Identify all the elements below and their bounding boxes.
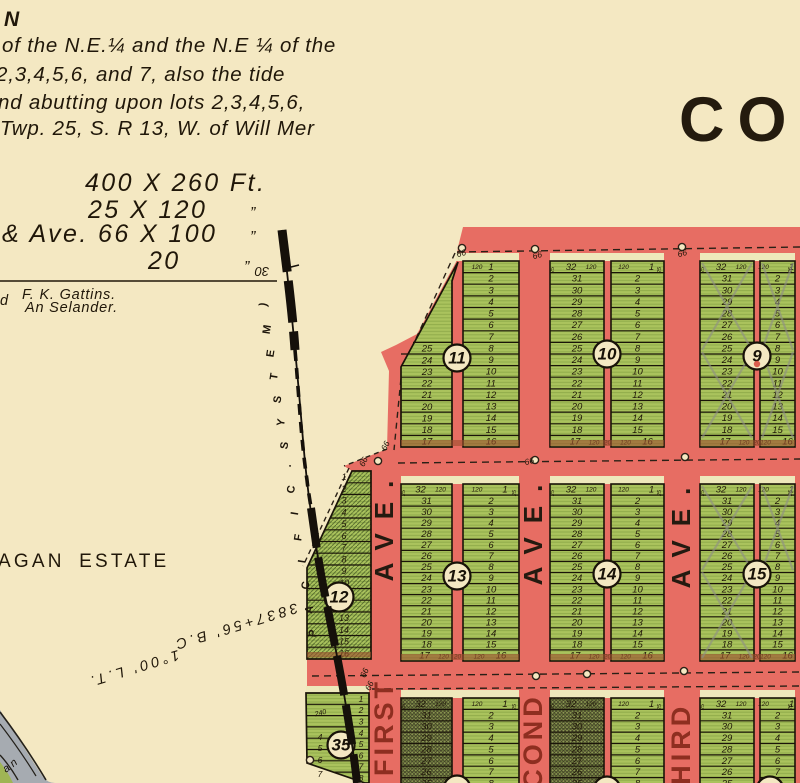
svg-text:31: 31: [572, 710, 583, 721]
svg-text:120: 120: [586, 701, 597, 708]
svg-text:11: 11: [448, 349, 466, 368]
svg-text:3: 3: [635, 285, 641, 296]
svg-text:25: 25: [421, 344, 433, 355]
svg-text:11: 11: [773, 595, 783, 606]
svg-text:9: 9: [775, 573, 781, 584]
svg-text:30: 30: [572, 285, 583, 296]
svg-text:5: 5: [635, 529, 641, 540]
svg-text:7: 7: [488, 551, 494, 562]
svg-text:& Ave. 66 X 100: & Ave. 66 X 100: [2, 220, 217, 248]
svg-text:23: 23: [571, 584, 583, 595]
svg-text:25: 25: [550, 266, 556, 274]
svg-text:30: 30: [722, 722, 733, 733]
svg-text:18: 18: [572, 640, 583, 651]
svg-text:1: 1: [502, 485, 507, 496]
svg-text:1: 1: [359, 694, 364, 704]
svg-text:28: 28: [571, 744, 583, 755]
svg-text:9: 9: [488, 573, 494, 584]
svg-text:1: 1: [649, 699, 654, 710]
svg-text:9: 9: [775, 355, 781, 366]
svg-text:1: 1: [488, 262, 493, 273]
svg-text:25: 25: [721, 779, 733, 783]
svg-text:120: 120: [586, 264, 597, 271]
svg-text:120: 120: [618, 264, 629, 271]
svg-text:7: 7: [775, 551, 781, 562]
svg-text:5: 5: [488, 744, 494, 755]
svg-text:27: 27: [721, 320, 733, 331]
svg-text:2: 2: [774, 274, 781, 285]
svg-text:25: 25: [721, 562, 733, 573]
svg-text:120: 120: [736, 701, 747, 708]
svg-text:27: 27: [571, 320, 583, 331]
svg-text:8: 8: [488, 562, 494, 573]
svg-text:2: 2: [774, 496, 781, 507]
svg-text:10: 10: [598, 345, 617, 364]
svg-text:8: 8: [635, 562, 641, 573]
svg-text:120: 120: [758, 701, 769, 708]
svg-text:30: 30: [722, 507, 733, 518]
svg-text:26: 26: [571, 767, 583, 778]
svg-text:27: 27: [721, 540, 733, 551]
svg-text:120: 120: [618, 701, 629, 708]
svg-text:24: 24: [721, 355, 733, 366]
svg-text:7: 7: [488, 767, 494, 778]
svg-text:5: 5: [635, 309, 641, 320]
svg-text:31: 31: [421, 710, 432, 721]
svg-text:26: 26: [420, 767, 432, 778]
svg-text:24: 24: [721, 573, 733, 584]
svg-text:21: 21: [571, 606, 583, 617]
svg-text:nd abutting upon lots 2,3,4,5,: nd abutting upon lots 2,3,4,5,6,: [0, 91, 305, 114]
svg-text:13: 13: [486, 618, 497, 629]
svg-text:3: 3: [635, 507, 641, 518]
svg-text:25: 25: [420, 779, 432, 783]
svg-text:2: 2: [487, 274, 494, 285]
svg-text:31: 31: [722, 274, 733, 285]
svg-text:31: 31: [572, 496, 583, 507]
svg-text:22: 22: [571, 378, 583, 389]
svg-text:8: 8: [488, 779, 494, 783]
svg-text:12: 12: [330, 588, 349, 607]
svg-text:7: 7: [775, 767, 781, 778]
svg-text:11: 11: [486, 595, 496, 606]
svg-text:30: 30: [572, 722, 583, 733]
svg-text:25: 25: [401, 703, 407, 711]
svg-text:13: 13: [339, 613, 349, 623]
svg-text:7: 7: [635, 551, 641, 562]
svg-text:Twp. 25, S. R 13, W. of Will M: Twp. 25, S. R 13, W. of Will Mer: [0, 117, 315, 140]
svg-text:4: 4: [635, 297, 640, 308]
svg-text:13: 13: [632, 618, 643, 629]
svg-text:31: 31: [421, 496, 432, 507]
svg-text:8: 8: [775, 343, 781, 354]
svg-text:9: 9: [341, 566, 346, 576]
svg-text:14: 14: [772, 629, 783, 640]
svg-text:25: 25: [788, 703, 794, 711]
svg-text:7: 7: [318, 769, 323, 779]
svg-text:8: 8: [488, 343, 494, 354]
svg-text:29: 29: [571, 518, 583, 529]
svg-text:120: 120: [586, 487, 597, 494]
svg-text:25: 25: [657, 703, 663, 711]
svg-text:30: 30: [421, 507, 432, 518]
svg-text:14: 14: [772, 413, 783, 424]
svg-text:5: 5: [635, 744, 641, 755]
svg-text:3: 3: [488, 285, 494, 296]
svg-text:120: 120: [435, 487, 446, 494]
svg-text:29: 29: [721, 733, 733, 744]
svg-text:15: 15: [486, 425, 497, 436]
svg-text:6: 6: [488, 320, 494, 331]
svg-text:18: 18: [572, 425, 583, 436]
svg-text:32: 32: [716, 485, 727, 496]
svg-text:4: 4: [488, 518, 493, 529]
svg-text:19: 19: [421, 629, 432, 640]
svg-text:19: 19: [722, 413, 733, 424]
svg-text:12: 12: [632, 606, 643, 617]
svg-text:23: 23: [721, 584, 733, 595]
svg-text:23: 23: [421, 367, 433, 378]
svg-text:25: 25: [571, 343, 583, 354]
svg-text:13: 13: [632, 402, 643, 413]
svg-text:18: 18: [722, 425, 733, 436]
svg-text:3: 3: [775, 722, 781, 733]
svg-text:30: 30: [572, 507, 583, 518]
svg-text:24: 24: [420, 573, 432, 584]
svg-text:22: 22: [420, 595, 432, 606]
svg-text:120: 120: [736, 264, 747, 271]
svg-text:d: d: [0, 293, 9, 309]
svg-text:29: 29: [571, 733, 583, 744]
svg-text:28: 28: [571, 529, 583, 540]
svg-text:25: 25: [657, 489, 663, 497]
svg-text:14: 14: [632, 413, 643, 424]
svg-text:10: 10: [772, 367, 783, 378]
svg-text:26: 26: [721, 767, 733, 778]
svg-text:28: 28: [571, 309, 583, 320]
svg-text:5: 5: [359, 739, 364, 749]
svg-text:”: ”: [244, 259, 252, 276]
svg-text:10: 10: [772, 584, 783, 595]
svg-text:25: 25: [657, 266, 663, 274]
svg-text:25: 25: [700, 703, 706, 711]
svg-text:18: 18: [722, 640, 733, 651]
svg-text:5: 5: [488, 309, 494, 320]
svg-text:FIRST: FIRST: [369, 678, 399, 776]
svg-text:14: 14: [486, 413, 497, 424]
svg-text:9: 9: [635, 573, 641, 584]
svg-text:3: 3: [359, 717, 364, 727]
svg-text:2: 2: [487, 496, 494, 507]
svg-text:1: 1: [502, 699, 507, 710]
svg-text:14: 14: [632, 629, 643, 640]
svg-text:4: 4: [488, 297, 493, 308]
svg-text:10: 10: [632, 367, 643, 378]
svg-text:32: 32: [415, 699, 426, 710]
svg-text:32: 32: [566, 485, 577, 496]
svg-text:2: 2: [634, 496, 641, 507]
svg-text:32: 32: [415, 485, 426, 496]
svg-text:26: 26: [571, 551, 583, 562]
svg-text:4: 4: [635, 518, 640, 529]
svg-text:1: 1: [649, 262, 654, 273]
svg-text:20: 20: [420, 618, 432, 629]
svg-text:M: M: [261, 324, 274, 335]
svg-text:20: 20: [571, 402, 583, 413]
svg-text:400 X 260 Ft.: 400 X 260 Ft.: [85, 169, 266, 197]
svg-text:8: 8: [775, 562, 781, 573]
svg-text:5: 5: [318, 743, 323, 753]
svg-text:18: 18: [422, 425, 433, 436]
svg-text:21: 21: [571, 390, 583, 401]
svg-text:6: 6: [488, 756, 494, 767]
svg-text:15: 15: [772, 640, 783, 651]
svg-text:120: 120: [472, 487, 483, 494]
svg-text:6: 6: [635, 756, 641, 767]
svg-text:7: 7: [635, 332, 641, 343]
svg-text:25: 25: [721, 343, 733, 354]
svg-text:7: 7: [488, 332, 494, 343]
svg-text:2: 2: [634, 274, 641, 285]
svg-text:52: 52: [448, 780, 467, 783]
svg-text:25: 25: [571, 779, 583, 783]
svg-text:24: 24: [421, 355, 433, 366]
svg-text:15: 15: [632, 425, 643, 436]
svg-text:120: 120: [435, 701, 446, 708]
svg-text:3: 3: [635, 722, 641, 733]
svg-text:29: 29: [420, 733, 432, 744]
svg-text:9: 9: [488, 355, 494, 366]
svg-text:14: 14: [598, 565, 617, 584]
svg-text:26: 26: [721, 332, 733, 343]
svg-text:8: 8: [635, 343, 641, 354]
svg-text:3: 3: [775, 507, 781, 518]
svg-text:2: 2: [774, 710, 781, 721]
svg-text:7: 7: [775, 332, 781, 343]
svg-text:6: 6: [775, 756, 781, 767]
svg-text:An Selander.: An Selander.: [24, 300, 118, 316]
svg-text:4: 4: [318, 732, 323, 742]
svg-text:28: 28: [420, 744, 432, 755]
svg-text:27: 27: [420, 540, 432, 551]
svg-text:29: 29: [571, 297, 583, 308]
svg-text:6: 6: [318, 755, 323, 765]
svg-text:13: 13: [448, 567, 467, 586]
svg-text:23: 23: [571, 367, 583, 378]
svg-text:120: 120: [618, 487, 629, 494]
svg-text:of the N.E.¼ and the N.E ¼ of: of the N.E.¼ and the N.E ¼ of the: [2, 34, 336, 57]
svg-text:21: 21: [421, 390, 433, 401]
svg-text:30: 30: [254, 264, 269, 279]
svg-text:19: 19: [722, 629, 733, 640]
svg-text:7: 7: [635, 767, 641, 778]
svg-text:6: 6: [635, 540, 641, 551]
svg-text:20: 20: [147, 247, 181, 275]
svg-text:12: 12: [486, 390, 497, 401]
svg-text:AVE.: AVE.: [369, 467, 399, 582]
svg-text:18: 18: [421, 640, 432, 651]
svg-text:31: 31: [572, 274, 583, 285]
svg-text:15: 15: [486, 640, 497, 651]
svg-text:4: 4: [775, 733, 780, 744]
svg-text:3: 3: [488, 722, 494, 733]
svg-text:26: 26: [721, 551, 733, 562]
svg-text:AVE.: AVE.: [666, 474, 696, 589]
svg-text:30: 30: [421, 722, 432, 733]
svg-text:23: 23: [721, 367, 733, 378]
svg-text:24: 24: [571, 573, 583, 584]
svg-text:22: 22: [571, 595, 583, 606]
svg-text:14: 14: [339, 625, 349, 635]
svg-text:19: 19: [572, 629, 583, 640]
svg-text:27: 27: [420, 756, 432, 767]
svg-text:THIRD: THIRD: [666, 703, 696, 783]
svg-text:2,3,4,5,6, and 7, also the tid: 2,3,4,5,6, and 7, also the tide: [0, 63, 285, 86]
svg-text:8: 8: [341, 554, 346, 564]
svg-text:15: 15: [339, 637, 350, 647]
svg-text:27: 27: [571, 756, 583, 767]
svg-text:27: 27: [571, 540, 583, 551]
svg-text:25: 25: [550, 489, 556, 497]
svg-text:29: 29: [420, 518, 432, 529]
svg-text:SECOND: SECOND: [518, 693, 548, 783]
svg-text:30: 30: [722, 285, 733, 296]
svg-text:3: 3: [341, 496, 346, 506]
svg-text:8: 8: [635, 779, 641, 783]
svg-text:15: 15: [632, 640, 643, 651]
svg-text:2: 2: [487, 710, 494, 721]
svg-text:6: 6: [775, 540, 781, 551]
svg-text:23: 23: [420, 584, 432, 595]
svg-text:5: 5: [775, 744, 781, 755]
svg-text:AVE.: AVE.: [518, 471, 548, 586]
svg-text:3: 3: [775, 285, 781, 296]
svg-text:13: 13: [486, 402, 497, 413]
svg-text:”: ”: [250, 229, 258, 246]
svg-text:12: 12: [632, 390, 643, 401]
svg-text:AGAN ESTATE: AGAN ESTATE: [0, 551, 169, 572]
svg-text:20: 20: [571, 618, 583, 629]
svg-text:4: 4: [359, 728, 364, 738]
svg-text:”: ”: [250, 205, 258, 222]
svg-text:12: 12: [772, 606, 783, 617]
svg-text:15: 15: [748, 565, 767, 584]
svg-text:6: 6: [488, 540, 494, 551]
svg-text:13: 13: [772, 618, 783, 629]
svg-text:120: 120: [472, 701, 483, 708]
svg-text:25: 25: [401, 489, 407, 497]
svg-text:19: 19: [422, 413, 433, 424]
svg-text:11: 11: [633, 378, 643, 389]
svg-text:15: 15: [772, 425, 783, 436]
svg-text:22: 22: [721, 595, 733, 606]
svg-text:4: 4: [341, 507, 346, 517]
svg-text:20: 20: [421, 402, 433, 413]
svg-text:31: 31: [722, 710, 733, 721]
svg-text:26: 26: [420, 551, 432, 562]
svg-text:19: 19: [572, 413, 583, 424]
svg-text:120: 120: [736, 487, 747, 494]
svg-text:32: 32: [716, 262, 727, 273]
svg-text:32: 32: [716, 699, 727, 710]
svg-text:14: 14: [486, 629, 497, 640]
svg-text:6: 6: [359, 750, 364, 760]
svg-text:N: N: [4, 8, 20, 31]
svg-text:24: 24: [571, 355, 583, 366]
svg-text:25: 25: [571, 562, 583, 573]
svg-text:31: 31: [722, 496, 733, 507]
svg-text:6: 6: [775, 320, 781, 331]
svg-text:28: 28: [420, 529, 432, 540]
svg-text:27: 27: [721, 756, 733, 767]
svg-text:4: 4: [488, 733, 493, 744]
svg-text:11: 11: [633, 595, 643, 606]
svg-text:32: 32: [566, 699, 577, 710]
svg-text:CO: CO: [679, 85, 800, 155]
svg-text:21: 21: [420, 606, 432, 617]
svg-text:32: 32: [566, 262, 577, 273]
svg-text:2: 2: [340, 484, 346, 494]
svg-text:25: 25: [550, 703, 556, 711]
svg-text:25: 25: [420, 562, 432, 573]
svg-text:22: 22: [421, 379, 433, 390]
svg-text:10: 10: [486, 584, 497, 595]
svg-text:26: 26: [571, 332, 583, 343]
svg-text:4: 4: [635, 733, 640, 744]
svg-text:9: 9: [635, 355, 641, 366]
svg-text:10: 10: [632, 584, 643, 595]
svg-text:3: 3: [488, 507, 494, 518]
svg-text:12: 12: [486, 606, 497, 617]
svg-text:120: 120: [472, 264, 483, 271]
svg-text:10: 10: [486, 367, 497, 378]
svg-text:2: 2: [634, 710, 641, 721]
svg-text:6: 6: [635, 320, 641, 331]
svg-text:1: 1: [341, 472, 346, 482]
svg-text:1: 1: [649, 485, 654, 496]
svg-text:6: 6: [341, 531, 346, 541]
svg-text:28: 28: [721, 744, 733, 755]
svg-text:2: 2: [358, 705, 364, 715]
svg-text:11: 11: [486, 378, 496, 389]
svg-text:5: 5: [488, 529, 494, 540]
